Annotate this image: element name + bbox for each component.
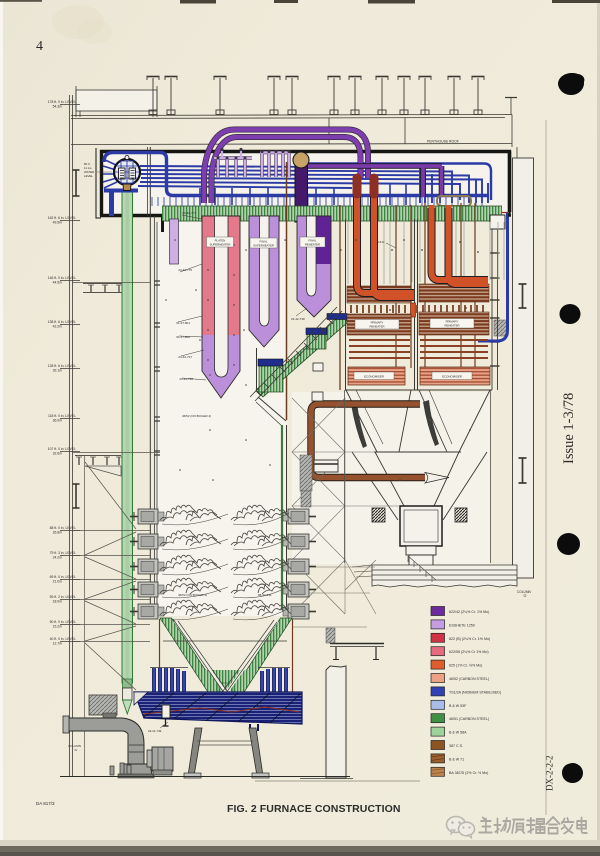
svg-text:PENTHOUSE ROOF: PENTHOUSE ROOF [427,140,459,144]
svg-text:622/42 (2¼% Cr. 1% Mo): 622/42 (2¼% Cr. 1% Mo) [449,610,489,614]
svg-text:88-32-841: 88-32-841 [258,593,272,597]
svg-text:12.7m: 12.7m [53,642,63,646]
svg-text:15.2m: 15.2m [53,625,63,629]
svg-text:ESSHETE 1250: ESSHETE 1250 [449,623,475,627]
svg-text:54.3m: 54.3m [53,105,63,109]
svg-text:23-40-775: 23-40-775 [178,268,192,272]
svg-text:B & W 58A: B & W 58A [449,731,467,735]
svg-text:BA 387/D (2% Cr. ½ Mo): BA 387/D (2% Cr. ½ Mo) [449,771,488,775]
svg-text:61-27-801: 61-27-801 [176,321,190,325]
svg-text:46/52 (CARBON STEEL): 46/52 (CARBON STEEL) [449,677,489,681]
svg-text:'G': 'G' [74,748,78,752]
svg-text:ECONOMISER: ECONOMISER [364,374,384,378]
svg-text:B & W 71: B & W 71 [449,757,464,761]
svg-text:40 ft. 0 in. LEVEL: 40 ft. 0 in. LEVEL [50,637,77,641]
svg-text:622 (B) (2¼% Cr. 1% Mo): 622 (B) (2¼% Cr. 1% Mo) [449,637,490,641]
svg-text:4: 4 [36,39,43,54]
svg-text:79 ft. 3 in. LEVEL: 79 ft. 3 in. LEVEL [50,551,77,555]
svg-text:23-42-738: 23-42-738 [179,377,193,381]
svg-text:32.6m: 32.6m [53,452,63,456]
svg-text:REHEATER: REHEATER [369,325,384,329]
svg-text:46/51 (CARBON STEEL): 46/51 (CARBON STEEL) [449,717,489,721]
svg-text:B & W 53F: B & W 53F [449,704,467,708]
svg-text:49.5m: 49.5m [53,221,63,225]
svg-text:138 ft. 6 in. LEVEL: 138 ft. 6 in. LEVEL [48,320,76,324]
svg-text:18.0m: 18.0m [53,600,63,604]
svg-text:23-42-738: 23-42-738 [291,317,305,321]
svg-text:Issue 1-3/78: Issue 1-3/78 [561,393,577,464]
svg-text:59 ft. 2 in. LEVEL: 59 ft. 2 in. LEVEL [50,595,77,599]
svg-text:622/55 (2¼% Cr 1% Mo): 622/55 (2¼% Cr 1% Mo) [449,650,489,654]
svg-text:44.5m: 44.5m [53,281,63,285]
svg-text:50 ft. 0 in. LEVEL: 50 ft. 0 in. LEVEL [50,620,77,624]
svg-text:61-27-802: 61-27-802 [176,335,190,339]
svg-text:ECONOMISER: ECONOMISER [442,374,462,378]
svg-text:LEVEL: LEVEL [84,174,93,178]
svg-text:36.0m: 36.0m [53,419,63,423]
svg-text:REHEATER: REHEATER [305,243,320,247]
svg-text:42.2m: 42.2m [53,325,63,329]
svg-text:23-42-737: 23-42-737 [178,355,192,359]
svg-text:88 ft. 0 in. LEVEL: 88 ft. 0 in. LEVEL [50,526,77,530]
svg-text:TS1/2A (NIOBIUM STABILISED): TS1/2A (NIOBIUM STABILISED) [449,690,501,694]
svg-text:146 ft. 0 in. LEVEL: 146 ft. 0 in. LEVEL [48,276,76,280]
svg-text:DA 817/3: DA 817/3 [36,801,55,806]
svg-text:46/52 (ON BOILER 2): 46/52 (ON BOILER 2) [178,593,207,597]
svg-text:46/52 (ON BOILER 2): 46/52 (ON BOILER 2) [182,414,211,418]
svg-text:21.0m: 21.0m [53,580,63,584]
svg-text:SUPERHEATER: SUPERHEATER [210,243,231,247]
svg-text:23-41-749: 23-41-749 [148,729,162,733]
svg-text:DX-2-2-2: DX-2-2-2 [545,756,555,792]
svg-text:SUPERHEATER: SUPERHEATER [253,244,274,248]
svg-text:387 C.S.: 387 C.S. [449,744,463,748]
svg-text:69 ft. 0 in. LEVEL: 69 ft. 0 in. LEVEL [50,575,77,579]
svg-text:23-40-774: 23-40-774 [182,211,196,215]
svg-text:625 (1% Cr. ½% Mo): 625 (1% Cr. ½% Mo) [449,664,482,668]
svg-text:FIG. 2 FURNACE CONSTRUCTION: FIG. 2 FURNACE CONSTRUCTION [227,803,401,815]
svg-text:39.1m: 39.1m [53,369,63,373]
svg-text:26.8m: 26.8m [53,531,63,535]
svg-text:178 ft. 0 in. LEVEL: 178 ft. 0 in. LEVEL [48,100,76,104]
svg-text:128 ft. 6 in. LEVEL: 128 ft. 6 in. LEVEL [48,364,76,368]
svg-text:162 ft. 6 in. LEVEL: 162 ft. 6 in. LEVEL [48,216,76,220]
svg-text:'G': 'G' [523,594,527,598]
svg-text:24.2m: 24.2m [53,556,63,560]
svg-text:118 ft. 0 in. LEVEL: 118 ft. 0 in. LEVEL [48,414,76,418]
svg-text:REHEATER: REHEATER [444,324,459,328]
svg-text:107 ft. 0 in. LEVEL: 107 ft. 0 in. LEVEL [48,447,76,451]
